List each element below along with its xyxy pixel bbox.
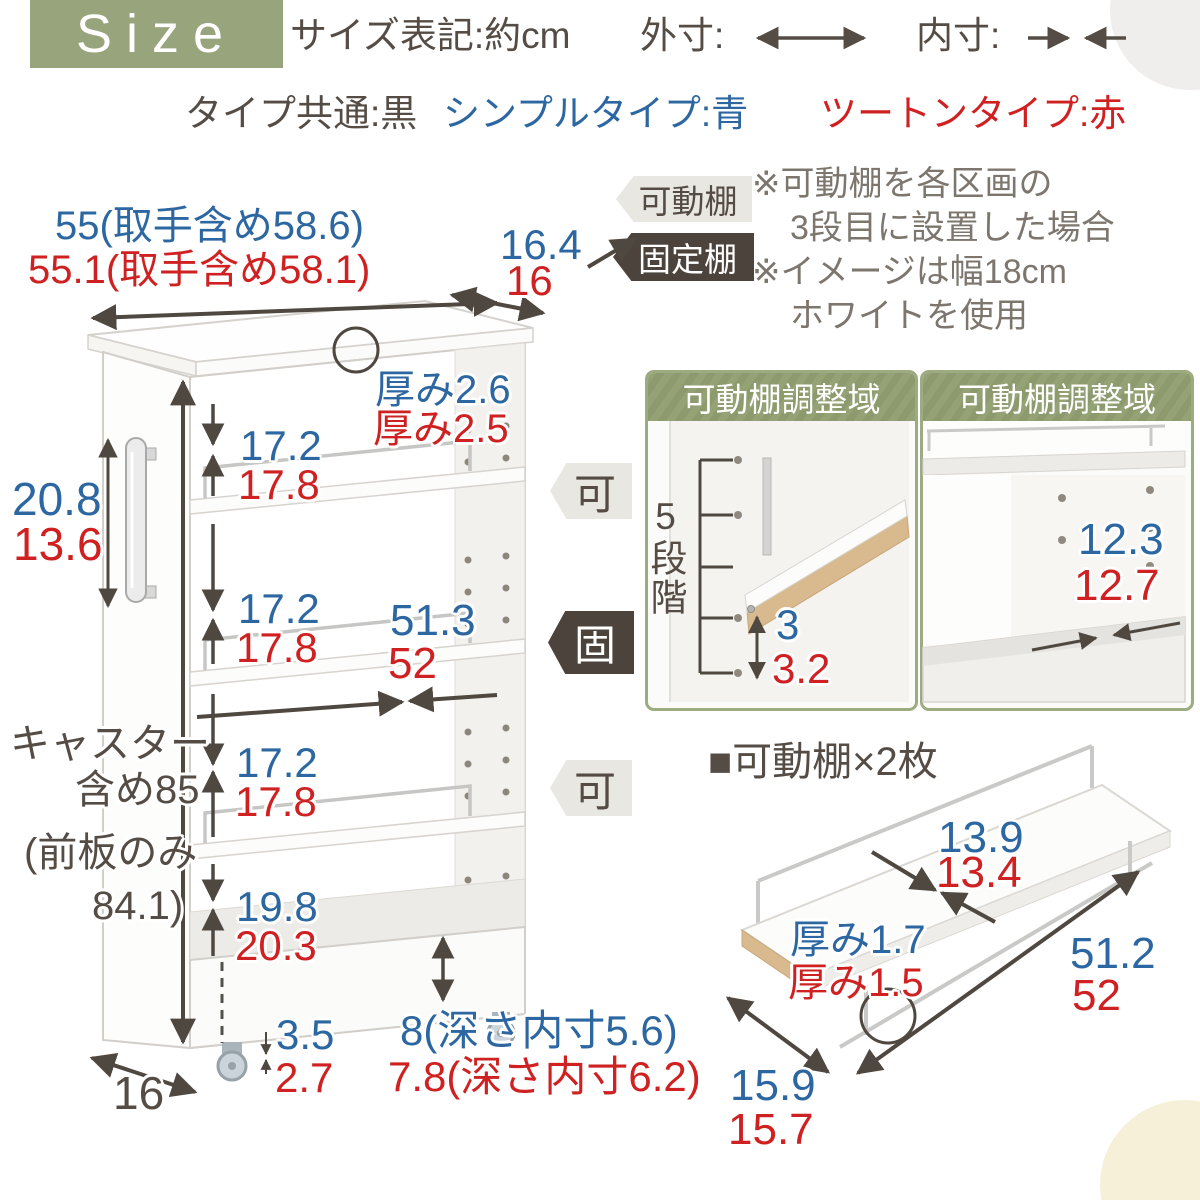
height-label-1: キャスター [10,724,210,764]
movable-tag-2: 可 [550,760,632,816]
adjust-range-panel-2-title: 可動棚調整域 [958,373,1156,421]
movable-shelf-tag: 可動棚 [616,176,752,222]
fixed-shelf-tag-label: 固定棚 [638,233,737,281]
type-common-label: タイプ共通:黒 [185,95,417,132]
dim-box-red: 7.8(深さ内寸6.2) [388,1056,701,1098]
shelf-depth-red: 13.4 [936,851,1022,895]
movable-tag-1: 可 [550,463,632,519]
dim-caster-red: 2.7 [275,1057,333,1099]
shelf-thickness-red: 厚み1.5 [788,963,924,1003]
movable-tag-2-label: 可 [574,758,616,819]
outer-dim-label: 外寸: [640,17,724,54]
shelf-pin [748,606,755,613]
inner-dim-arrow-icon [1026,26,1128,50]
size-infographic: Size サイズ表記:約cm 外寸: 内寸: タイプ共通:黒 シンプルタイプ:青… [0,0,1200,1200]
dim-handle-red: 13.6 [13,521,103,567]
dim-thickness-blue: 厚み2.6 [375,370,511,410]
movable-tag-1-label: 可 [574,461,616,522]
dim-depth-top-red: 16 [506,260,553,302]
adjust-range-panel-1-title: 可動棚調整域 [683,373,881,421]
type-twotone-label: ツートンタイプ:赤 [820,95,1126,132]
shelf-length-blue: 51.2 [1070,932,1156,976]
range-blue: 12.3 [1078,518,1164,562]
inner-dim-label: 内寸: [916,17,1000,54]
dim-width-red: 55.1(取手含め58.1) [28,250,370,290]
size-notation-label: サイズ表記:約cm [290,17,571,54]
height-label-3: (前板のみ [24,833,197,873]
wire-rail [763,458,771,555]
dim-inner-width-red: 52 [388,642,437,686]
fixed-tag: 固 [548,611,634,674]
dim-width-blue: 55(取手含め58.6) [55,206,364,246]
adjust-range-panel-1-header: 可動棚調整域 [648,373,915,421]
dim-box-blue: 8(深さ内寸5.6) [400,1010,678,1052]
height-label-2: 含め85 [75,770,200,810]
five-steps-label: 5段階 [647,496,684,617]
shelf-length-red: 52 [1072,974,1121,1018]
dim-caster-blue: 3.5 [276,1014,334,1056]
size-title-badge: Size [30,0,283,68]
dim-thickness-red: 厚み2.5 [373,409,509,449]
dim-handle-blue: 20.8 [12,476,102,522]
shelf-width-blue: 15.9 [730,1064,816,1108]
note-line-2: 3段目に設置した場合 [790,211,1115,245]
dim-comp1-red: 17.8 [238,464,320,506]
movable-shelf-tag-label: 可動棚 [639,175,738,223]
pitch-blue: 3 [776,604,799,646]
dim-comp2-red: 17.8 [236,627,318,669]
dim-inner-width-blue: 51.3 [390,599,476,643]
height-label-4: 84.1) [92,886,183,926]
size-title: Size [76,3,237,65]
pitch-red: 3.2 [772,648,830,690]
outer-dim-arrow-icon [750,26,872,50]
shelf-thickness-blue: 厚み1.7 [790,920,926,960]
dim-comp3-red: 17.8 [235,781,317,823]
note-line-1: ※可動棚を各区画の [752,167,1053,201]
type-simple-label: シンプルタイプ:青 [443,95,748,132]
fixed-tag-label: 固 [574,612,616,673]
note-line-4: ホワイトを使用 [790,299,1028,333]
dim-depth-bottom: 16 [113,1070,164,1116]
range-red: 12.7 [1074,564,1160,608]
note-line-3: ※イメージは幅18cm [752,255,1067,289]
shelf-width-red: 15.7 [728,1108,814,1152]
adjust-range-panel-2-header: 可動棚調整域 [923,373,1191,421]
dim-comp4-red: 20.3 [235,925,317,967]
cart-diagram [60,220,640,1100]
